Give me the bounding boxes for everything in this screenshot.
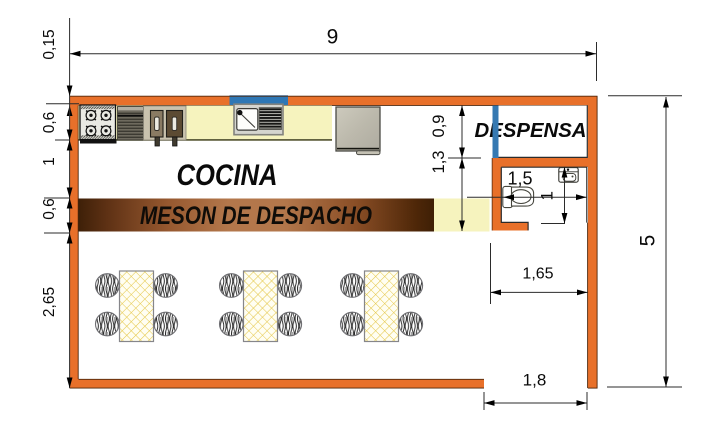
svg-text:0,6: 0,6 [41,112,58,134]
svg-text:1: 1 [537,191,556,200]
svg-text:5: 5 [637,235,660,247]
svg-text:1: 1 [41,157,58,166]
svg-text:1,5: 1,5 [507,169,532,189]
svg-text:0,9: 0,9 [430,115,448,138]
svg-text:1,65: 1,65 [522,266,553,283]
svg-text:DESPENSA: DESPENSA [475,119,587,142]
svg-text:0,6: 0,6 [41,198,58,220]
svg-text:1,3: 1,3 [430,151,448,174]
svg-text:COCINA: COCINA [177,159,278,192]
svg-text:MESON DE DESPACHO: MESON DE DESPACHO [140,202,372,230]
svg-text:9: 9 [327,26,339,49]
svg-text:0,15: 0,15 [41,29,58,59]
svg-text:2,65: 2,65 [41,287,58,317]
svg-text:1,8: 1,8 [523,371,547,390]
